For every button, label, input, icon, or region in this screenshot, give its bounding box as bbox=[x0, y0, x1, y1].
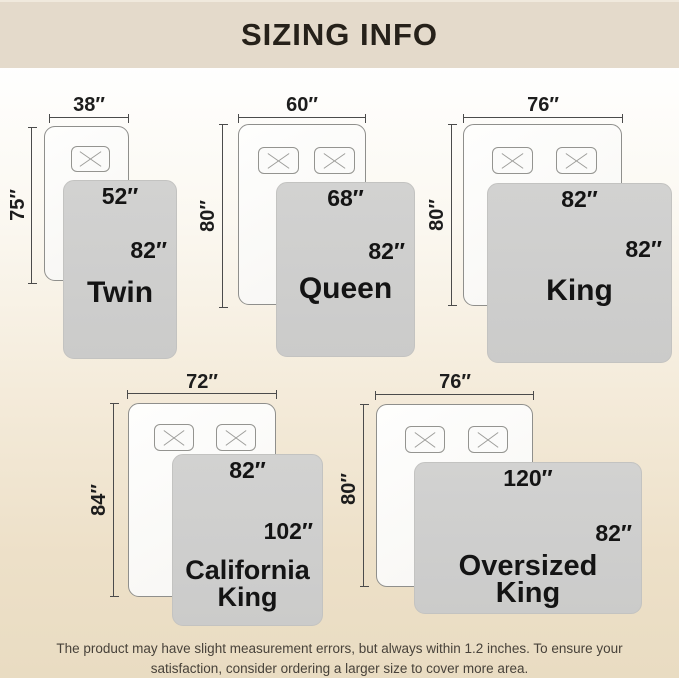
pillow-x-icon bbox=[492, 147, 533, 174]
king-blanket-length-label: 82″ bbox=[625, 236, 662, 263]
page-title: SIZING INFO bbox=[241, 17, 438, 53]
king-bed-length-line bbox=[451, 124, 452, 306]
pillow-x-icon bbox=[405, 426, 445, 453]
queen-blanket-width-label: 68″ bbox=[277, 185, 414, 212]
queen-bed-width-label: 60″ bbox=[238, 94, 366, 117]
calking-name-label: California King bbox=[173, 557, 322, 611]
queen-blanket-length-label: 82″ bbox=[368, 238, 405, 265]
header-band: SIZING INFO bbox=[0, 0, 679, 68]
pillow-x-icon bbox=[556, 147, 597, 174]
calking-bed-width-line bbox=[127, 393, 277, 394]
queen-bed-width-line bbox=[238, 117, 366, 118]
twin-name-label: Twin bbox=[64, 279, 176, 307]
calking-bed-length-line bbox=[113, 403, 114, 597]
pillow-x-icon bbox=[314, 147, 355, 174]
pillow-x-icon bbox=[258, 147, 299, 174]
calking-blanket: 82″ 102″ California King bbox=[172, 454, 323, 626]
calking-blanket-length-label: 102″ bbox=[264, 518, 313, 545]
twin-bed-length-line bbox=[31, 127, 32, 284]
twin-blanket: 52″ 82″ Twin bbox=[63, 180, 177, 359]
disclaimer-line-1: The product may have slight measurement … bbox=[0, 639, 679, 659]
queen-bed-length-line bbox=[222, 124, 223, 308]
calking-bed-width-label: 72″ bbox=[127, 371, 277, 394]
queen-bed-length-label: 80″ bbox=[197, 176, 221, 256]
twin-blanket-width-label: 52″ bbox=[64, 183, 176, 210]
twin-blanket-length-label: 82″ bbox=[130, 237, 167, 264]
pillow-x-icon bbox=[216, 424, 256, 451]
pillow-x-icon bbox=[468, 426, 508, 453]
sizing-info-infographic: SIZING INFO 38″ 75″ 52″ 82″ Twin 60″ 80″ bbox=[0, 0, 679, 678]
oversized-blanket: 120″ 82″ Oversized King bbox=[414, 462, 642, 614]
oversized-bed-length-label: 80″ bbox=[338, 449, 362, 529]
oversized-blanket-length-label: 82″ bbox=[595, 520, 632, 547]
king-blanket-width-label: 82″ bbox=[488, 186, 671, 213]
king-bed-width-label: 76″ bbox=[463, 94, 623, 117]
oversized-name-label: Oversized King bbox=[415, 553, 641, 607]
king-bed-length-label: 80″ bbox=[426, 175, 450, 255]
disclaimer-line-2: satisfaction, consider ordering a larger… bbox=[0, 659, 679, 678]
king-blanket: 82″ 82″ King bbox=[487, 183, 672, 363]
calking-blanket-width-label: 82″ bbox=[173, 457, 322, 484]
twin-bed-width-label: 38″ bbox=[49, 94, 129, 117]
oversized-bed-width-line bbox=[375, 394, 534, 395]
oversized-bed-width-label: 76″ bbox=[375, 371, 535, 394]
twin-bed-width-line bbox=[49, 117, 129, 118]
queen-blanket: 68″ 82″ Queen bbox=[276, 182, 415, 357]
queen-name-label: Queen bbox=[277, 275, 414, 303]
oversized-blanket-width-label: 120″ bbox=[415, 465, 641, 492]
pillow-x-icon bbox=[71, 146, 110, 172]
calking-bed-length-label: 84″ bbox=[88, 460, 112, 540]
pillow-x-icon bbox=[154, 424, 194, 451]
twin-bed-length-label: 75″ bbox=[7, 165, 31, 245]
king-bed-width-line bbox=[463, 117, 623, 118]
oversized-bed-length-line bbox=[363, 404, 364, 587]
king-name-label: King bbox=[488, 277, 671, 305]
disclaimer-text: The product may have slight measurement … bbox=[0, 639, 679, 678]
